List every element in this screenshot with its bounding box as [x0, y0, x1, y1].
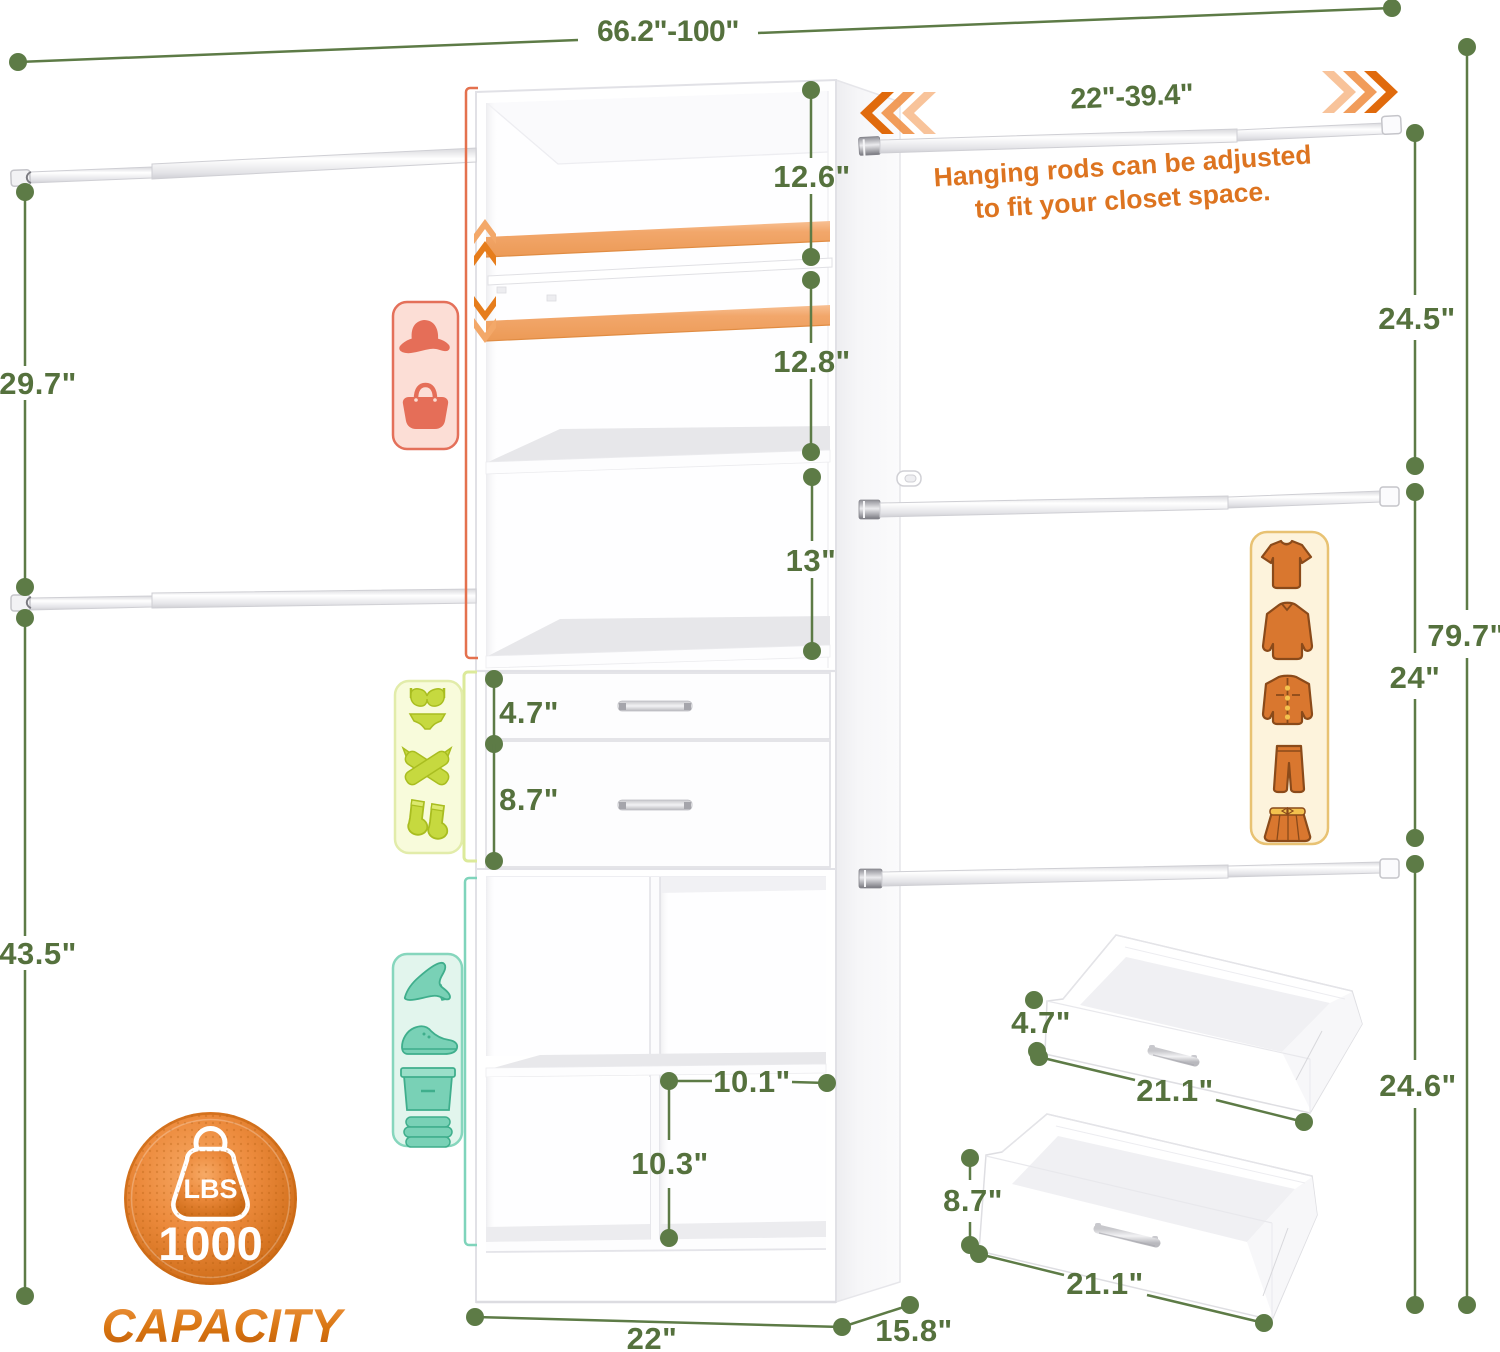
svg-text:29.7": 29.7" — [0, 366, 77, 401]
svg-text:24": 24" — [1390, 660, 1441, 695]
svg-text:10.1": 10.1" — [713, 1064, 791, 1099]
svg-text:12.8": 12.8" — [773, 344, 851, 379]
svg-text:1000: 1000 — [158, 1217, 263, 1270]
svg-text:LBS: LBS — [184, 1174, 238, 1204]
svg-text:66.2"-100": 66.2"-100" — [597, 15, 739, 48]
svg-text:10.3": 10.3" — [631, 1146, 709, 1181]
svg-text:8.7": 8.7" — [499, 782, 559, 817]
svg-text:21.1": 21.1" — [1066, 1266, 1144, 1301]
svg-text:22": 22" — [627, 1321, 678, 1352]
svg-text:13": 13" — [786, 543, 837, 578]
svg-text:24.5": 24.5" — [1378, 301, 1456, 336]
svg-text:24.6": 24.6" — [1379, 1068, 1457, 1103]
svg-text:12.6": 12.6" — [773, 159, 851, 194]
svg-text:43.5": 43.5" — [0, 936, 77, 971]
svg-text:22"-39.4": 22"-39.4" — [1070, 78, 1194, 115]
svg-text:8.7": 8.7" — [943, 1183, 1003, 1218]
svg-text:79.7": 79.7" — [1427, 618, 1500, 653]
svg-text:CAPACITY: CAPACITY — [102, 1299, 346, 1352]
svg-text:15.8": 15.8" — [875, 1313, 953, 1348]
svg-text:4.7": 4.7" — [1011, 1005, 1071, 1040]
svg-text:21.1": 21.1" — [1136, 1073, 1214, 1108]
svg-text:4.7": 4.7" — [499, 695, 559, 730]
